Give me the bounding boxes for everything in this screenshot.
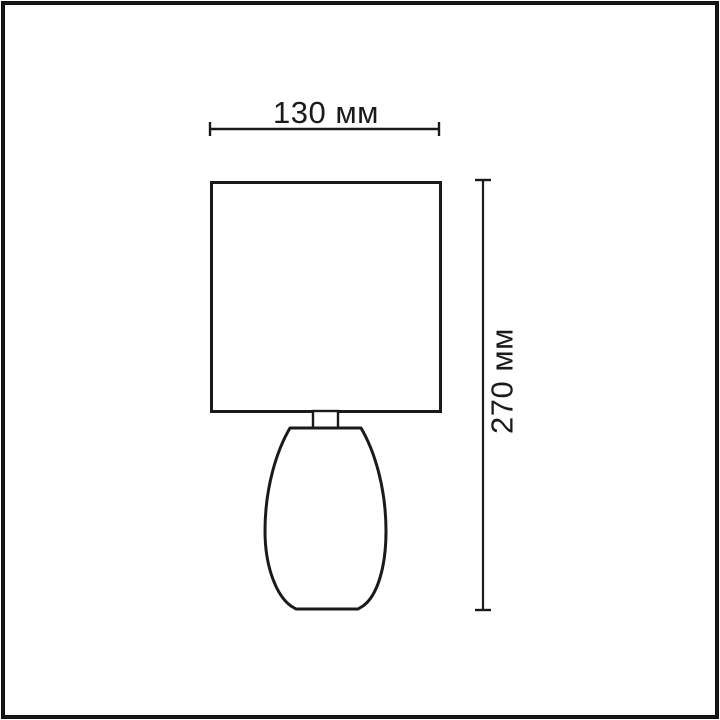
diagram-canvas: 130 мм 270 мм [0, 0, 720, 720]
lamp-base [265, 428, 386, 609]
lamp-dimension-diagram: 130 мм 270 мм [0, 0, 720, 720]
lampshade-outline [212, 183, 441, 412]
width-dimension-label: 130 мм [273, 95, 379, 130]
height-dimension-label: 270 мм [485, 328, 520, 434]
lamp-neck [313, 411, 338, 428]
